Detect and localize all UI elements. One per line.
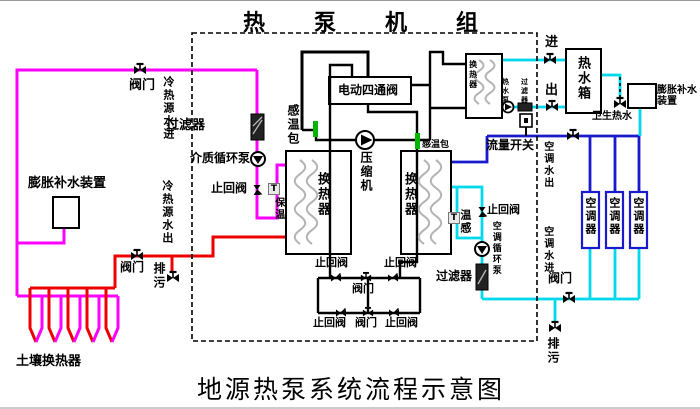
valve-hw-out-icon [546, 101, 558, 111]
medium-pump-icon [251, 152, 265, 166]
sensor-bulb-right-icon [415, 133, 420, 149]
hw-filter-icon [518, 103, 532, 111]
four-way-valve-box [329, 77, 411, 104]
source-side-red-pipes [30, 237, 287, 288]
bridge-check-tl-icon [331, 274, 341, 282]
filter-left-icon [251, 114, 264, 140]
ac-unit-2-box [606, 192, 623, 248]
bridge-check-br-icon [389, 309, 399, 317]
ac-blue-pipes [440, 136, 640, 192]
ac-unit-3-box [630, 192, 647, 248]
bridge-valve-bottom-icon [363, 308, 373, 317]
valve-source-supply-icon [134, 64, 146, 74]
drain-ac-valve-icon [549, 322, 561, 332]
bridge-check-bl-icon [336, 309, 346, 317]
ac-pump-icon [475, 242, 489, 256]
diagram-title-top: 热泵机组 [243, 5, 527, 37]
compressor-icon [356, 131, 374, 149]
check-valve-ac-icon [479, 207, 487, 217]
bridge-check-tr-icon [388, 274, 398, 282]
check-valve-left-icon [254, 185, 262, 195]
sensor-bulb-left-icon [313, 121, 318, 137]
flow-switch-icon [520, 114, 532, 136]
bridge-valve-mid-icon [361, 273, 371, 282]
ac-filter-icon [476, 264, 488, 290]
hot-water-cyan-pipes [502, 60, 620, 107]
ac-unit-1-box [582, 192, 599, 248]
diagram-canvas: 阀门冷热源水进膨胀补水装置冷热源水出过滤器介质循环泵止回阀保温感温包电动四通阀压… [0, 0, 700, 409]
hw-pump-icon [503, 102, 514, 113]
valve-ac-supply-icon [567, 130, 579, 140]
valve-sanitary-icon [614, 98, 626, 108]
piping-diagram-svg [0, 0, 700, 409]
hot-water-tank-box [566, 49, 601, 113]
expansion-device-left-box [53, 197, 79, 228]
source-side-magenta-pipes [17, 70, 287, 296]
diagram-title-bottom: 地源热泵系统流程示意图 [197, 370, 505, 406]
valve-ac-header-icon [563, 293, 575, 303]
valve-hw-in-icon [544, 54, 556, 64]
heat-exchanger-right-box [401, 151, 451, 254]
valve-source-return-icon [131, 250, 143, 260]
expansion-device-right-box [628, 84, 656, 108]
drain-source-valve-icon [167, 272, 179, 282]
